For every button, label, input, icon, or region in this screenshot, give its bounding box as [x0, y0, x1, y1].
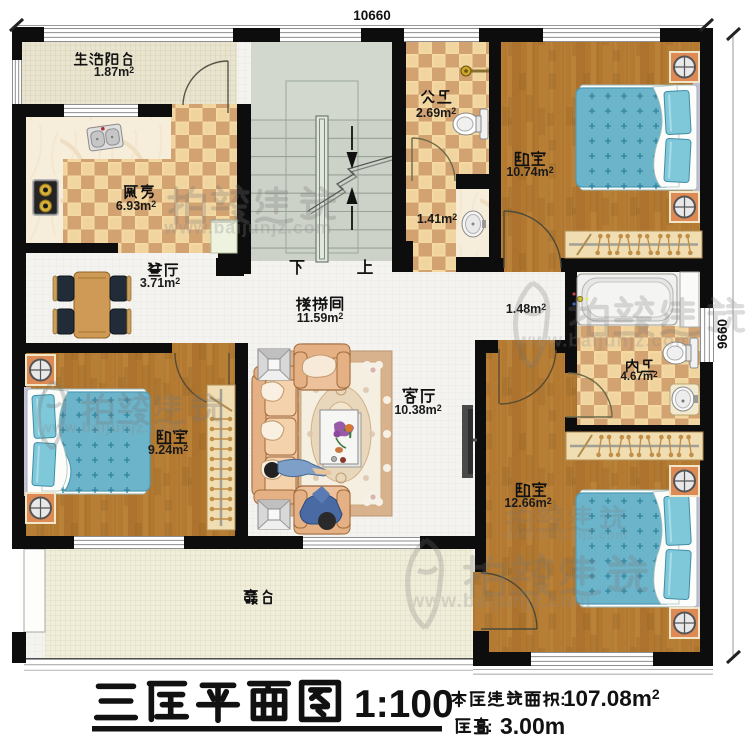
svg-text:107.08m2: 107.08m2: [563, 686, 660, 711]
svg-text:10660: 10660: [353, 8, 391, 23]
svg-text:9.24m2: 9.24m2: [148, 443, 188, 457]
svg-text:www.baijunjz.com: www.baijunjz.com: [163, 218, 332, 238]
svg-text:3.71m2: 3.71m2: [140, 276, 180, 290]
svg-text:11.59m2: 11.59m2: [297, 311, 344, 325]
svg-text:1.41m2: 1.41m2: [417, 212, 457, 226]
svg-text::: :: [487, 717, 493, 736]
svg-text:www.baijunjz.com: www.baijunjz.com: [502, 528, 628, 542]
svg-text:2.69m2: 2.69m2: [416, 106, 456, 120]
svg-text:www.baijunjz.com: www.baijunjz.com: [516, 330, 693, 351]
svg-text:9660: 9660: [715, 319, 730, 349]
svg-text:4.67m2: 4.67m2: [620, 370, 658, 383]
svg-text:10.74m2: 10.74m2: [506, 165, 553, 179]
svg-text:10.38m2: 10.38m2: [394, 403, 441, 417]
svg-text:www.baijunjz.com: www.baijunjz.com: [408, 591, 591, 612]
svg-text:1.87m2: 1.87m2: [94, 65, 134, 79]
svg-text:www.baijunjz.com: www.baijunjz.com: [39, 421, 183, 437]
svg-text:3.00m: 3.00m: [500, 713, 565, 739]
svg-text:6.93m2: 6.93m2: [116, 199, 156, 213]
svg-text:1:100: 1:100: [354, 683, 454, 726]
